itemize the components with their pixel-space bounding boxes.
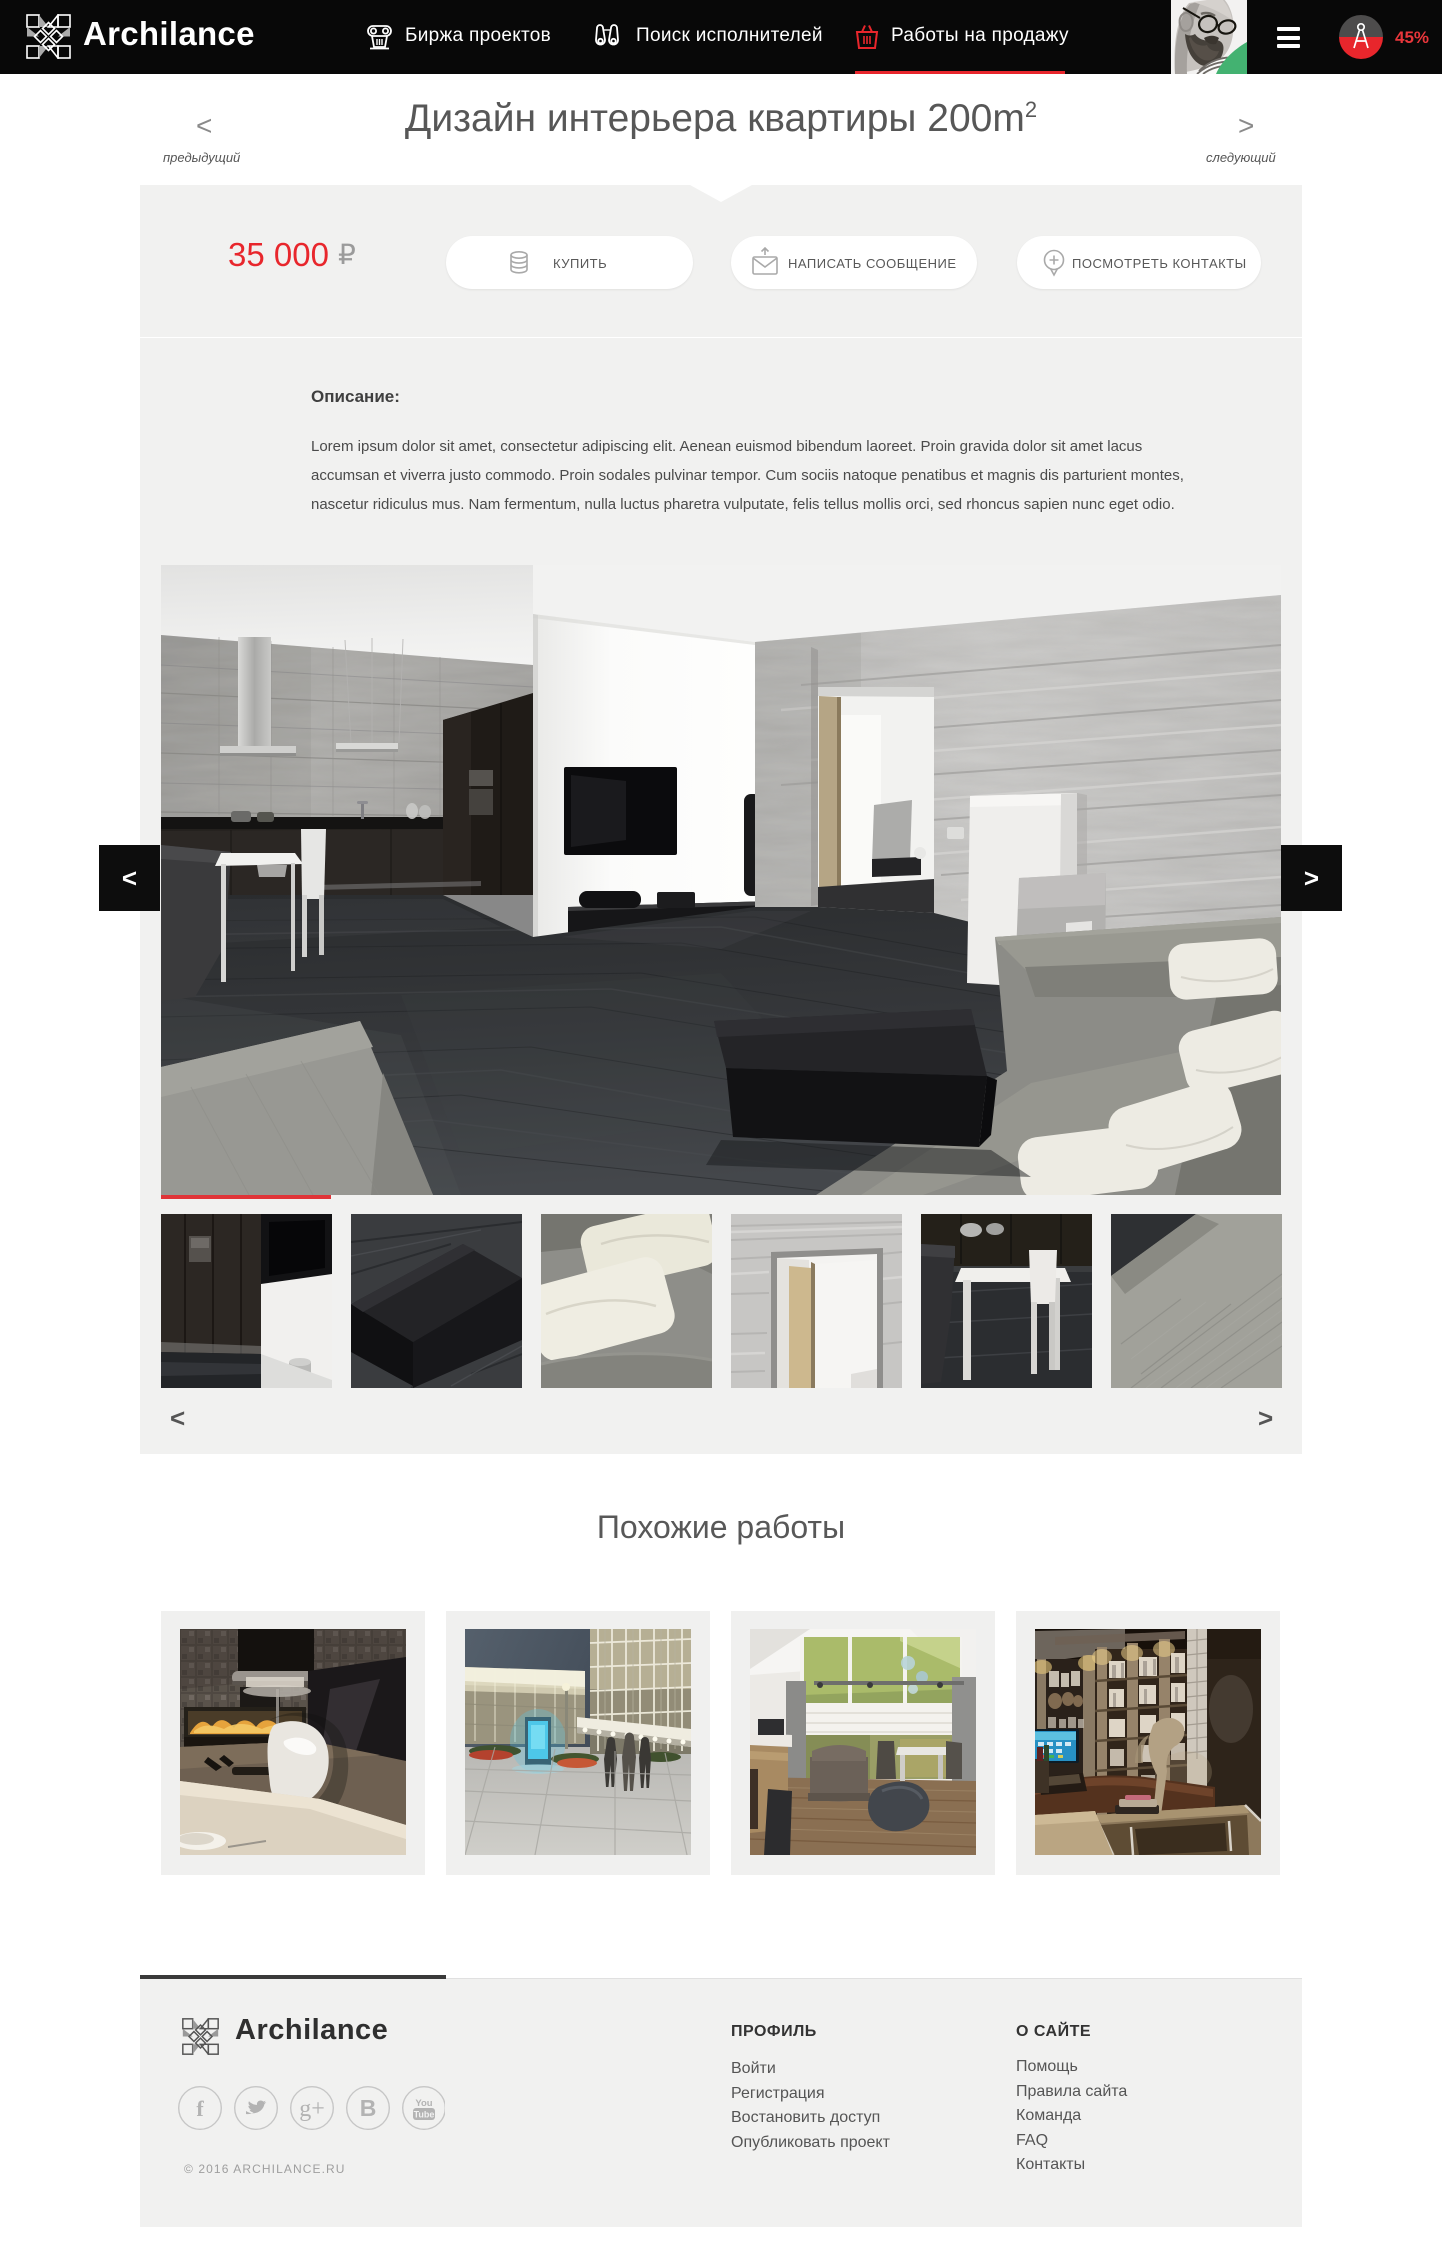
svg-text:B: B [360,2095,377,2121]
svg-text:f: f [196,2096,204,2121]
svg-text:Tube: Tube [414,2110,435,2120]
svg-text:g+: g+ [299,2096,325,2122]
svg-text:You: You [415,2098,432,2109]
